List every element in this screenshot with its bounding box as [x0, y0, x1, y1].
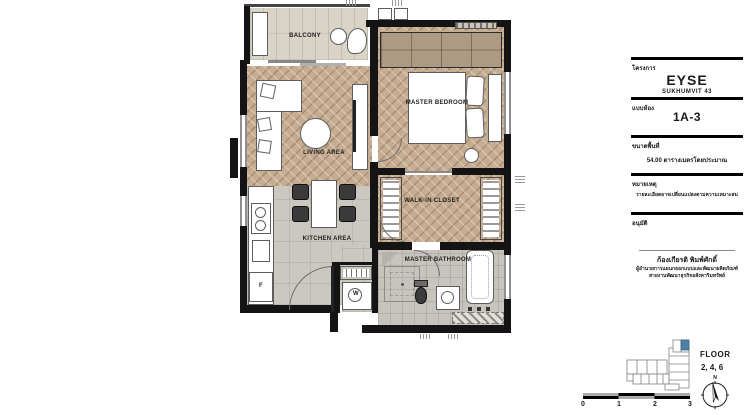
nook-top-line: [340, 262, 372, 265]
living-area-label: LIVING AREA: [303, 150, 345, 156]
closet-bath-wall-left: [378, 242, 412, 250]
closet-opening-line: [405, 171, 452, 173]
bathroom-bottom-wall: [362, 325, 511, 333]
project-subtitle: SUKHUMVIT 43: [631, 89, 743, 95]
hall-bath-wall: [372, 245, 378, 313]
balcony-planter: [252, 12, 268, 56]
scale-tick-1: 1: [617, 401, 621, 408]
burner-1: [255, 207, 266, 218]
shower-drain: [401, 283, 404, 286]
exterior-column: [230, 138, 238, 178]
keyplan-unit-highlight: [681, 340, 689, 350]
bed-headboard: [488, 74, 502, 142]
bath-bench-hatch: [452, 312, 504, 324]
sliding-door-panel-2: [300, 63, 346, 66]
walkin-closet-label: WALK-IN CLOSET: [404, 198, 460, 204]
closet-bath-wall-right: [440, 242, 511, 250]
unit-type-value: 1A-3: [631, 110, 743, 124]
title-rule-5: [631, 212, 743, 215]
north-compass: N: [697, 373, 733, 411]
keyplan-floor-label: FLOOR: [700, 350, 731, 359]
approver-title-2: สายงานพัฒนาธุรกิจอสังหาริมทรัพย์: [631, 272, 743, 280]
title-rule-1: [631, 57, 743, 60]
floorplan-sheet: MASTER BEDROOM LIVING AREA F KITCHEN ARE…: [0, 0, 745, 415]
balcony-table: [330, 28, 347, 45]
title-rule-3: [631, 135, 743, 138]
title-block: โครงการ EYSE SUKHUMVIT 43 แบบห้อง 1A-3 ข…: [631, 55, 743, 290]
area-label: ขนาดพื้นที่: [632, 141, 659, 151]
title-rule-4: [631, 173, 743, 176]
toilet-tank: [414, 280, 428, 287]
tub-faucet-3: [486, 307, 490, 311]
area-value: 54.00 ตารางเมตรโดยประมาณ: [631, 155, 743, 165]
balcony-chair: [347, 28, 367, 54]
pillow-2: [465, 108, 485, 139]
dining-chair-2: [292, 206, 309, 222]
condenser-unit-2: [394, 8, 408, 20]
kitchen-area-label: KITCHEN AREA: [303, 236, 352, 242]
washer-label: W: [353, 291, 359, 297]
signature-line: [639, 250, 735, 251]
fridge-label: F: [259, 283, 263, 289]
kitchen-window: [240, 196, 247, 226]
bathroom-window: [504, 255, 511, 299]
living-window: [240, 115, 247, 167]
project-name: EYSE: [631, 72, 743, 88]
living-bedroom-wall-upper: [370, 26, 378, 136]
tub-faucet-2: [477, 307, 481, 311]
title-rule-2: [631, 97, 743, 100]
note-text: รายละเอียดอาจเปลี่ยนแปลงตามความเหมาะสม: [631, 191, 743, 199]
sofa-pillow-1: [260, 83, 277, 100]
dimension-tick-right-2: [515, 204, 525, 211]
bed: [408, 72, 466, 144]
dimension-tick-top-1: [346, 0, 356, 6]
toilet-bowl: [415, 287, 427, 304]
note-label: หมายเหตุ: [632, 179, 657, 189]
scale-tick-0: 0: [581, 401, 585, 408]
tv-screen: [353, 100, 356, 152]
approve-label: อนุมัติ: [632, 218, 648, 228]
keyplan-floors-value: 2, 4, 6: [701, 363, 723, 372]
bedroom-window: [504, 72, 511, 134]
bedroom-wardrobe: [380, 32, 502, 68]
dining-table: [311, 180, 337, 228]
keyplan-building: [625, 338, 695, 393]
vanity-sink: [441, 291, 454, 304]
left-wall: [240, 60, 247, 312]
master-bathroom-label: MASTER BATHROOM: [405, 257, 471, 263]
scale-tick-2: 2: [653, 401, 657, 408]
sofa-pillow-2: [257, 117, 272, 132]
bedroom-closet-wall-left: [378, 168, 405, 175]
kitchen-sink: [252, 240, 270, 262]
coffee-table: [300, 118, 331, 149]
dimension-tick-right-1: [515, 176, 525, 183]
dimension-tick-bottom-2: [448, 334, 458, 339]
tub-faucet-1: [468, 307, 472, 311]
bathtub-inner: [471, 255, 489, 299]
bedroom-closet-wall-right: [452, 168, 511, 175]
closet-wardrobe-right: [480, 177, 502, 240]
sofa-pillow-3: [257, 139, 272, 154]
scale-tick-3: 3: [688, 401, 692, 408]
burner-2: [255, 220, 266, 231]
dining-chair-3: [339, 184, 356, 200]
balcony-label: BALCONY: [289, 33, 321, 39]
shoe-cabinet: [340, 266, 372, 280]
master-bedroom-label: MASTER BEDROOM: [406, 100, 469, 106]
condenser-unit-1: [378, 8, 392, 20]
closet-left-wall: [370, 168, 378, 248]
dimension-tick-top-2: [392, 0, 402, 6]
dimension-tick-bottom-1: [420, 334, 430, 339]
entrance-door-leaf: [331, 266, 334, 312]
bedroom-stool: [464, 148, 479, 163]
compass-north-letter: N: [713, 375, 717, 381]
balcony-left-wall: [244, 6, 250, 64]
dining-chair-4: [339, 206, 356, 222]
dining-chair-1: [292, 184, 309, 200]
scale-bar-bottom: [583, 396, 690, 399]
ac-unit-note: [455, 22, 497, 29]
